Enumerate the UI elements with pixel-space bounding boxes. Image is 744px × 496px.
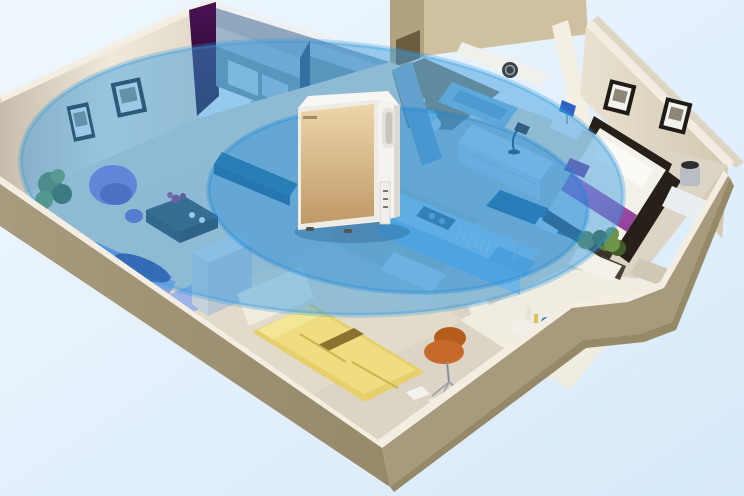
washing-machine bbox=[502, 62, 518, 78]
purifier-foot-1 bbox=[306, 227, 314, 231]
brand-logo-mark bbox=[303, 116, 317, 119]
bottle bbox=[526, 306, 531, 320]
floor-plan-illustration bbox=[0, 0, 744, 496]
purifier-handle-slot bbox=[386, 112, 393, 144]
purifier-controls bbox=[380, 182, 390, 224]
purifier-gold-panel bbox=[301, 104, 374, 224]
purifier-foot-2 bbox=[344, 229, 352, 233]
